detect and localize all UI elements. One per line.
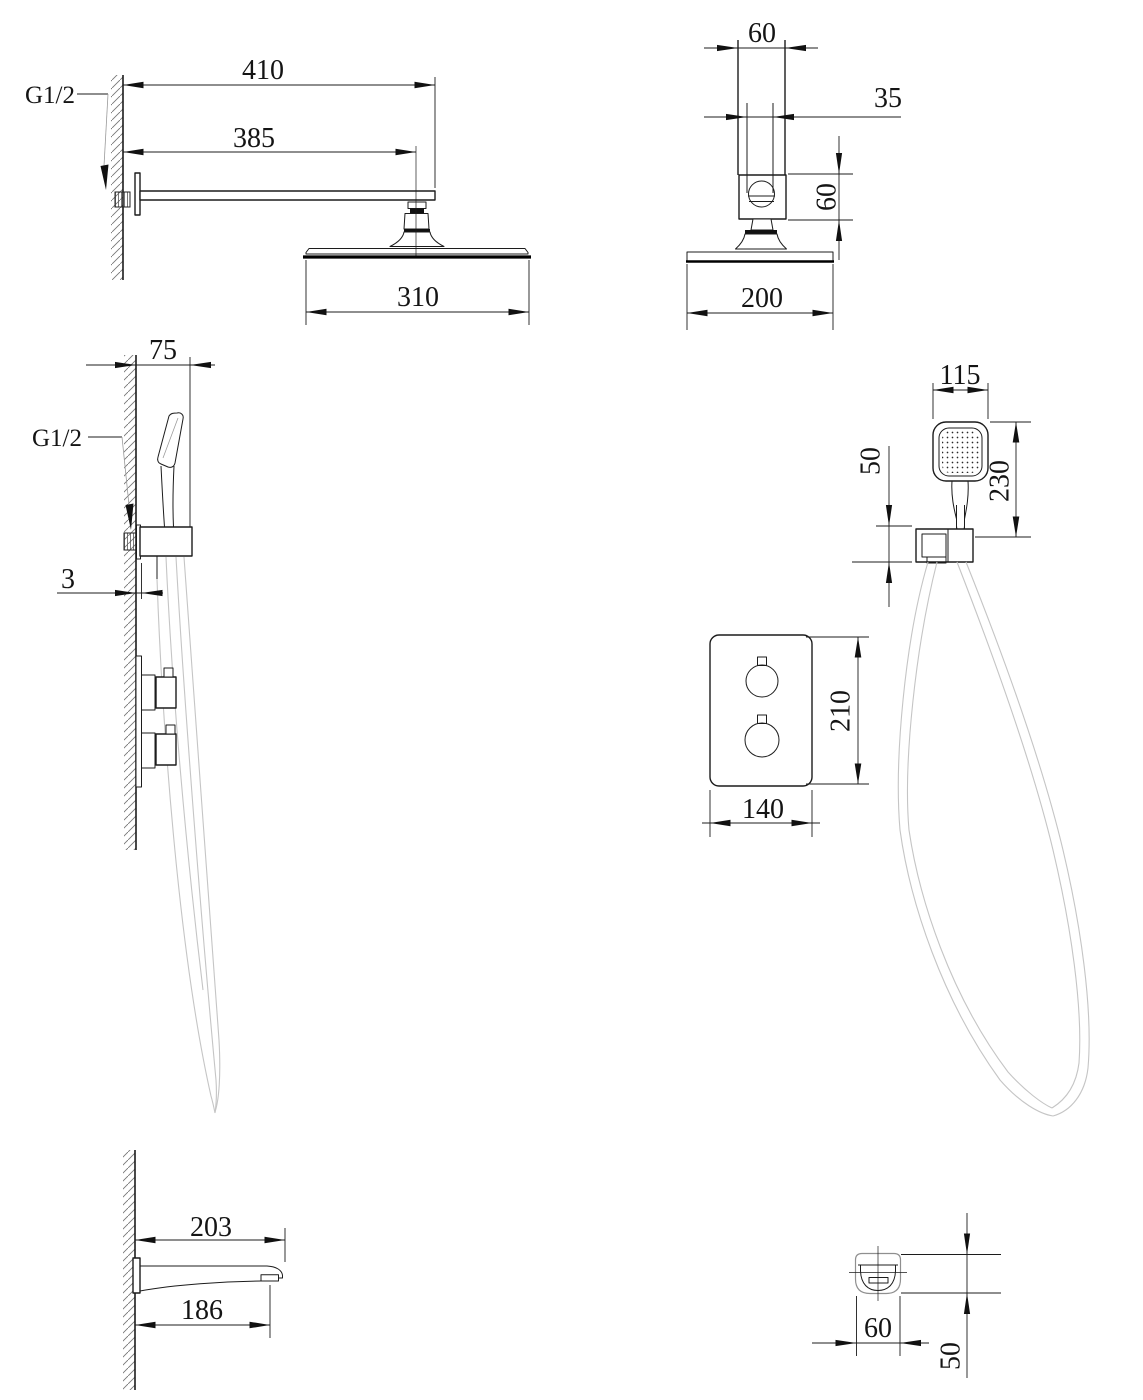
spray-nozzles [942, 431, 979, 473]
connector-bell [390, 232, 444, 247]
connector-bell [736, 234, 787, 249]
dim-arm-width: 60 [704, 18, 818, 51]
connector-neck [751, 219, 773, 230]
leader-arrow [101, 165, 109, 191]
valve-plate [710, 635, 812, 786]
connector-cone [404, 214, 429, 230]
dim-arm-length: 410 [123, 55, 435, 188]
handle-edge [965, 481, 969, 530]
valve-knob-lower [745, 723, 779, 757]
dim-holder-height: 50 [852, 446, 912, 607]
hose-line [166, 557, 203, 990]
dim-spout-length-to-outlet: 186 [135, 1285, 270, 1338]
dim-label-60-spout: 60 [864, 1313, 892, 1344]
view-rain-shower-side: G1/2 410 385 310 [25, 55, 531, 325]
dim-label-385: 385 [233, 123, 275, 154]
dim-label-60-vertical: 60 [812, 183, 843, 211]
dim-label-210: 210 [826, 690, 857, 732]
dim-label-203: 203 [190, 1212, 232, 1243]
dim-label-115: 115 [940, 360, 981, 391]
spout-bottom-edge [140, 1281, 261, 1291]
knob-index-lower [758, 715, 767, 724]
dim-label-35: 35 [874, 83, 902, 114]
dim-spout-length-total: 203 [135, 1212, 285, 1262]
thread-label: G1/2 [25, 82, 75, 109]
dim-label-410: 410 [242, 55, 284, 86]
dim-connector-width: 35 [704, 83, 902, 120]
valve-plate-side [136, 656, 142, 787]
drawing-page: G1/2 410 385 310 [0, 0, 1143, 1400]
wall-flange [135, 173, 140, 215]
dim-label-75: 75 [149, 335, 177, 366]
connector-gasket [745, 230, 777, 234]
wall-bracket-front [916, 529, 973, 563]
dim-label-310: 310 [397, 282, 439, 313]
view-hand-shower-side: 75 G1/2 [32, 335, 220, 1113]
holder-block [140, 527, 192, 556]
thread-nipple [124, 533, 136, 550]
dim-plate-height: 210 [806, 637, 869, 784]
wall-hatching [124, 355, 136, 850]
valve-knob-upper [746, 665, 778, 697]
dim-connector-height: 60 [788, 136, 853, 260]
hose-loop [957, 562, 1080, 1108]
dim-holder-depth: 75 [86, 335, 215, 527]
hose-line [184, 557, 220, 1112]
spout-flange [133, 1258, 140, 1293]
dim-head-diameter-front: 200 [687, 264, 833, 330]
dim-plate-width: 140 [702, 790, 820, 837]
dim-label-3: 3 [61, 564, 75, 595]
hose-loop [966, 562, 1089, 1116]
dim-label-50-spout: 50 [936, 1342, 967, 1370]
dim-arm-to-center: 385 [123, 123, 416, 154]
shower-system-technical-drawing: G1/2 410 385 310 [0, 0, 1143, 1400]
spout-outlet-lip [261, 1275, 279, 1281]
view-rain-shower-front: 60 35 60 200 [686, 18, 902, 330]
spout-aerator [869, 1278, 888, 1284]
dim-label-140: 140 [742, 794, 784, 825]
valve-knob-side-lower [142, 725, 177, 768]
dim-spout-width: 60 [812, 1296, 929, 1356]
thread-label: G1/2 [32, 425, 82, 452]
hose-line [157, 579, 215, 1113]
head-disc-front [687, 252, 833, 261]
ball-joint [749, 181, 775, 207]
view-spout-side: 203 186 [123, 1150, 285, 1390]
handshower-head-side [158, 413, 184, 468]
dim-label-60: 60 [748, 18, 776, 49]
thread-nipple [115, 192, 130, 207]
joint-block [739, 175, 786, 219]
handle-slot [957, 505, 965, 531]
handshower-handle-edge [173, 466, 174, 527]
view-hand-shower-front: 115 230 50 [852, 360, 1089, 1116]
connector-seal [410, 209, 424, 214]
dim-head-diameter-side: 310 [306, 260, 529, 325]
view-valve-front: 210 140 [702, 635, 869, 837]
hose-loop [908, 562, 1052, 1108]
dim-label-186: 186 [181, 1295, 223, 1326]
handle-edge [952, 481, 957, 530]
hose-loop [898, 562, 1053, 1116]
wall-hatching [111, 75, 123, 280]
shower-arm [140, 191, 435, 200]
dim-plate-thickness: 3 [57, 563, 163, 599]
handshower-handle-edge [161, 466, 165, 527]
dim-label-50: 50 [856, 447, 887, 475]
hose-line [176, 557, 216, 1113]
head-disc-side [306, 249, 528, 255]
knob-index-upper [758, 657, 767, 666]
leader-line [104, 94, 108, 166]
view-spout-front: 60 50 [812, 1213, 1001, 1378]
dim-head-width: 115 [933, 360, 988, 419]
dim-spout-height: 50 [901, 1213, 1001, 1378]
connector-nut [408, 202, 426, 209]
valve-knob-side-upper [142, 668, 177, 710]
dim-label-200: 200 [741, 283, 783, 314]
dim-label-230: 230 [985, 460, 1016, 502]
